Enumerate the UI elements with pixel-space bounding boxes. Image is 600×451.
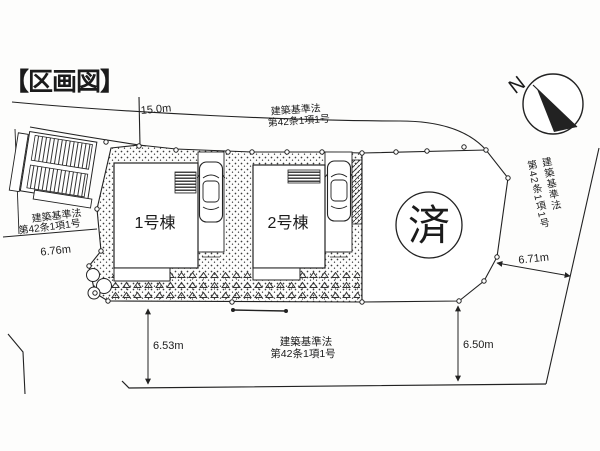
lot-2-side-hatch (352, 160, 362, 224)
dimension-east: 6.71m (518, 251, 550, 266)
lot-1-label: 1号棟 (135, 214, 176, 232)
neighbor-building (9, 130, 101, 208)
dimension-southwest: 6.53m (153, 340, 184, 352)
north-compass: N (505, 72, 583, 134)
road-edge-south (122, 381, 546, 388)
dimension-road-top: 15.0m (140, 102, 172, 117)
site-plan-page: 【区画図】 (0, 0, 600, 451)
law-label-west: 建築基準法 第42条1項1号 (18, 206, 82, 237)
lot-2-label: 2号棟 (268, 214, 309, 232)
survey-segment (233, 310, 286, 311)
survey-point (284, 309, 288, 313)
dimension-southeast: 6.50m (463, 339, 494, 351)
lot-1-porch (175, 172, 196, 193)
survey-point (231, 308, 235, 312)
law-label-north: 建築基準法 第42条1項1号 (267, 101, 330, 129)
car-icon-lot1 (197, 162, 225, 222)
lot-2-building-step (253, 268, 300, 280)
lot-1-building-step (114, 268, 170, 281)
car-icon-lot2 (325, 161, 353, 221)
dimension-west: 6.76m (40, 243, 72, 258)
law-south-line1: 建築基準法 (280, 335, 333, 348)
sold-label: 済 (408, 202, 450, 249)
road-edge-southwest (8, 334, 25, 394)
site-plan-drawing: N 済 1号棟 2号棟 15.0m 6.76m 6.71m 6.53m 6.50… (0, 0, 600, 451)
law-label-south: 建築基準法 第42条1項1号 (270, 335, 335, 360)
lot-2-porch (288, 170, 320, 183)
law-south-line2: 第42条1項1号 (270, 347, 335, 360)
